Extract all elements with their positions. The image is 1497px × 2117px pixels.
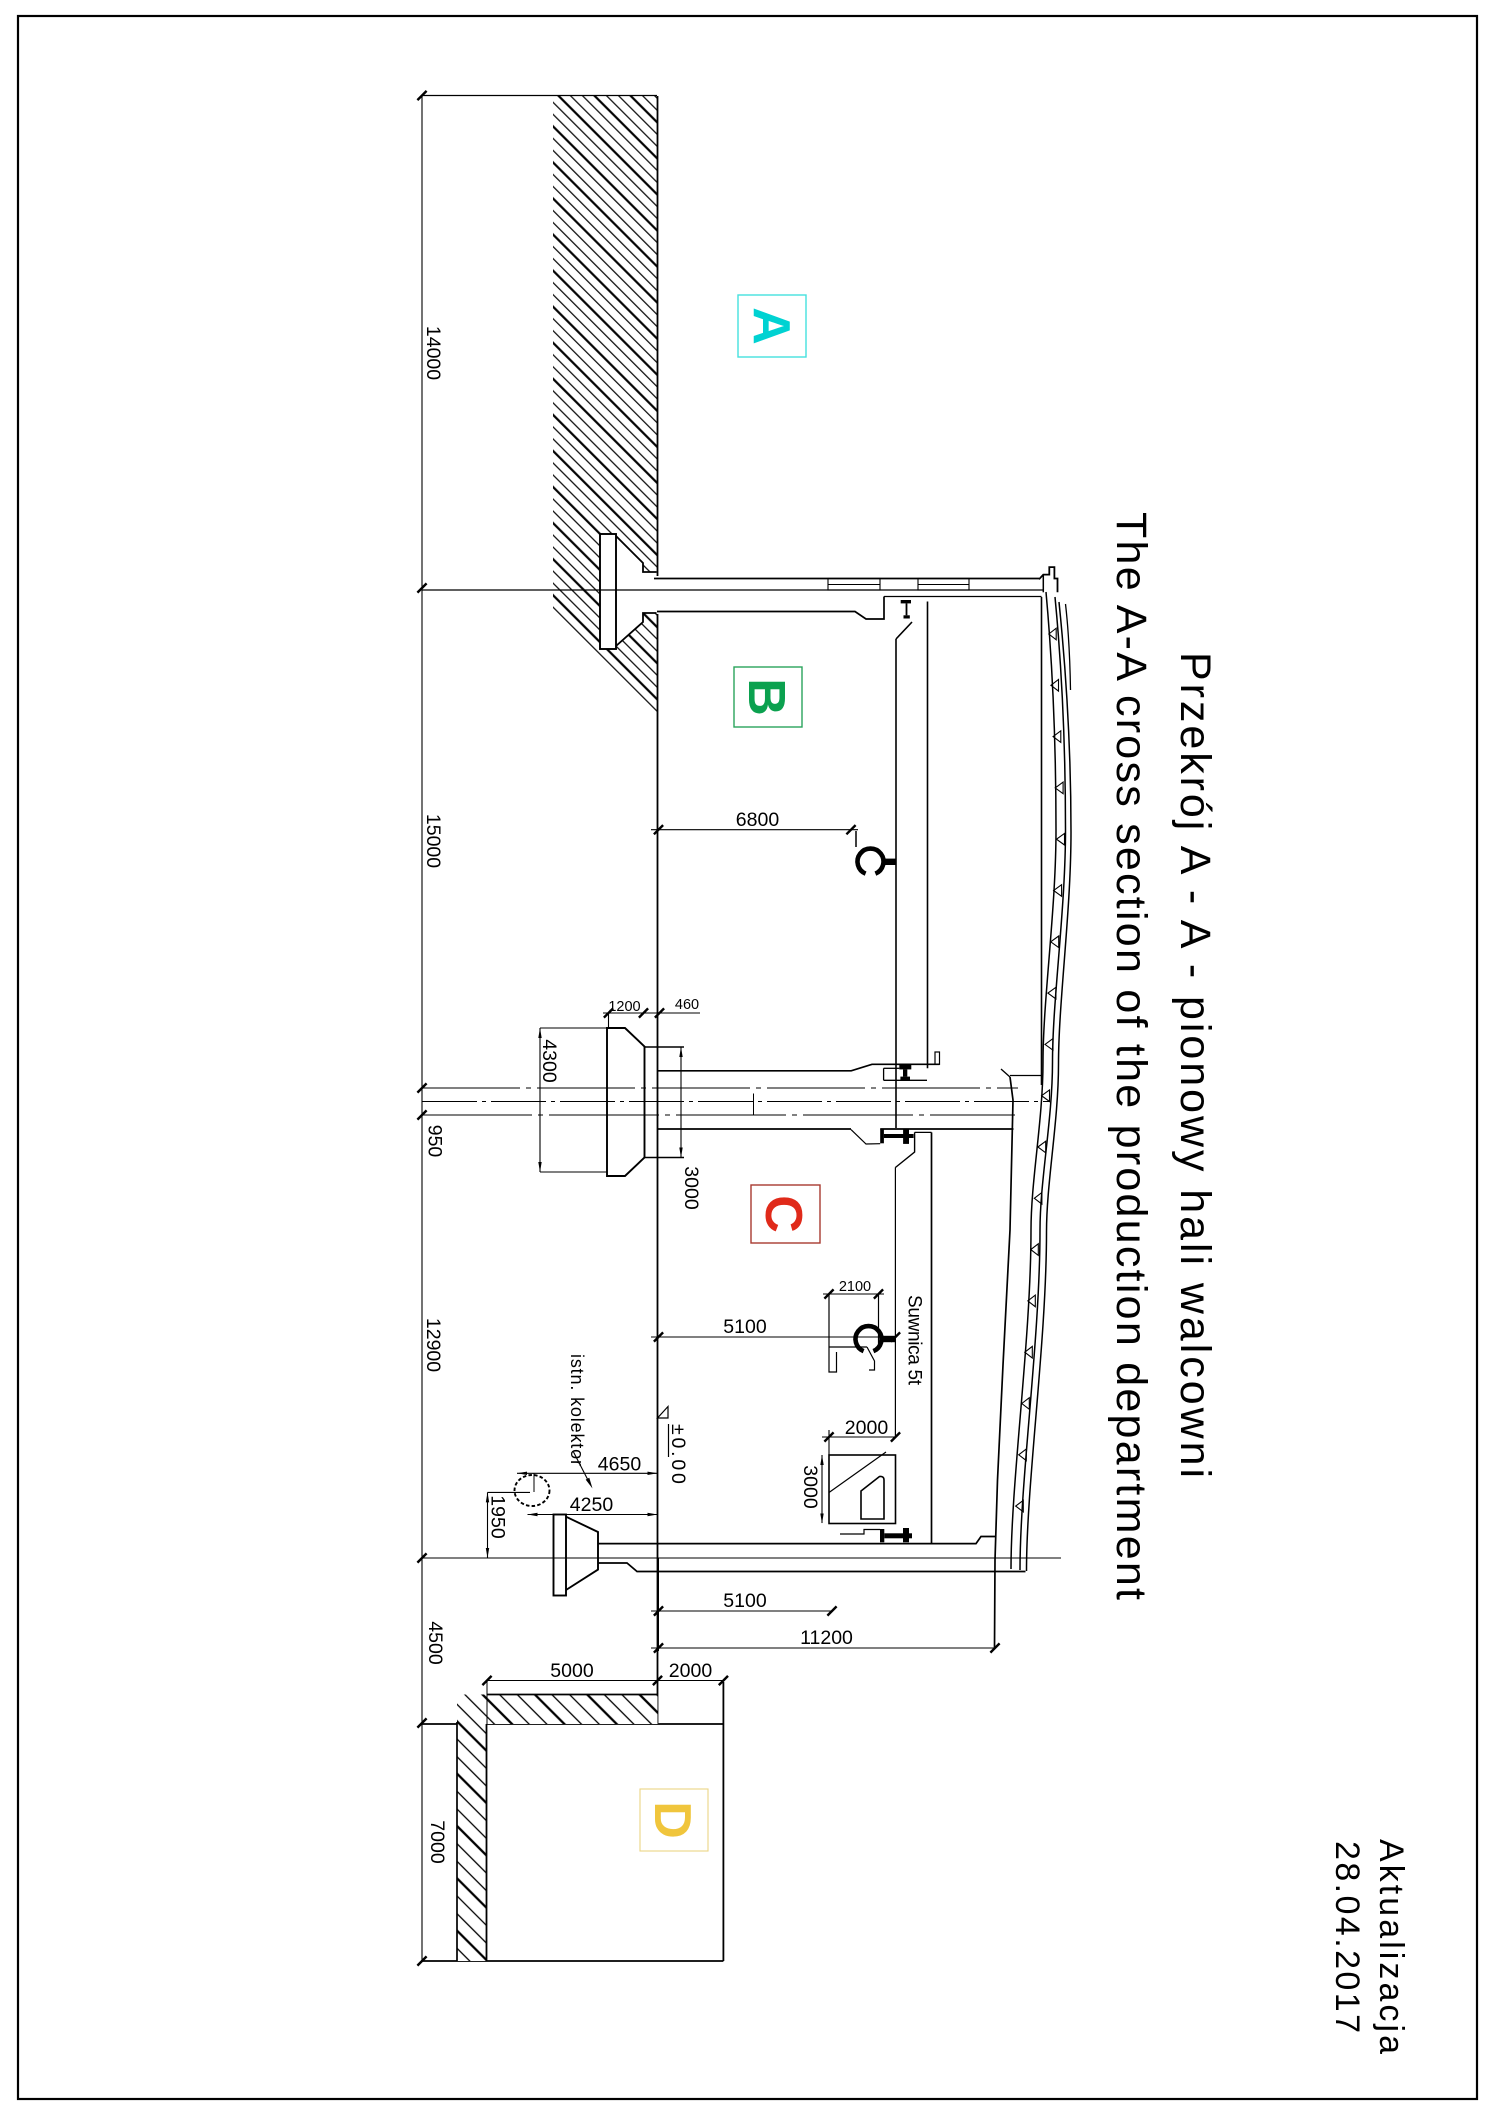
svg-text:12900: 12900	[422, 1318, 444, 1372]
svg-text:11200: 11200	[800, 1627, 853, 1649]
svg-text:7000: 7000	[426, 1820, 448, 1864]
svg-text:460: 460	[675, 997, 699, 1013]
svg-text:1200: 1200	[608, 999, 640, 1015]
svg-text:istn. kolektor: istn. kolektor	[567, 1354, 587, 1466]
svg-text:3000: 3000	[799, 1465, 821, 1509]
svg-text:4250: 4250	[570, 1494, 614, 1516]
svg-text:A: A	[742, 307, 800, 345]
svg-text:1950: 1950	[487, 1495, 509, 1539]
svg-text:2100: 2100	[839, 1279, 871, 1295]
svg-text:4300: 4300	[538, 1039, 560, 1083]
svg-text:2000: 2000	[669, 1660, 713, 1682]
svg-text:6800: 6800	[736, 809, 780, 831]
svg-text:4500: 4500	[424, 1621, 446, 1665]
svg-text:D: D	[643, 1801, 701, 1839]
svg-text:C: C	[754, 1195, 812, 1233]
svg-text:±0.00: ±0.00	[667, 1424, 689, 1487]
svg-text:3000: 3000	[680, 1166, 702, 1210]
svg-text:5000: 5000	[550, 1660, 594, 1682]
svg-text:950: 950	[424, 1125, 446, 1158]
svg-text:Suwnica 5t: Suwnica 5t	[904, 1295, 925, 1386]
svg-text:14000: 14000	[422, 326, 444, 380]
svg-text:B: B	[737, 678, 795, 716]
svg-text:5100: 5100	[723, 1316, 767, 1338]
svg-text:4650: 4650	[598, 1454, 642, 1476]
svg-text:5100: 5100	[723, 1590, 767, 1612]
svg-text:15000: 15000	[422, 814, 444, 868]
svg-text:2000: 2000	[845, 1417, 889, 1439]
